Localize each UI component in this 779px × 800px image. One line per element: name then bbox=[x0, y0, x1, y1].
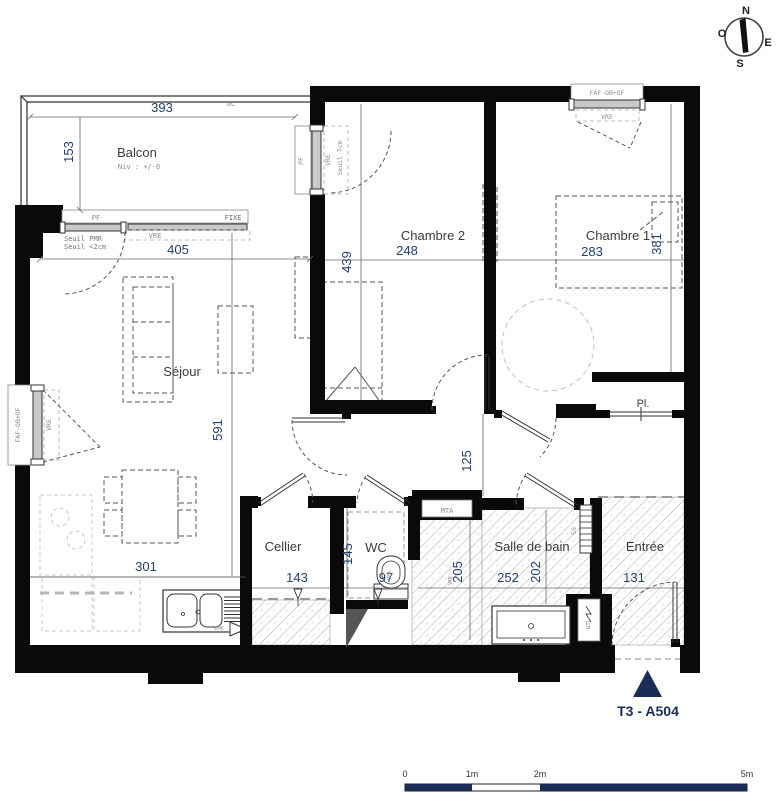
dim-balcon-width: 393 bbox=[151, 100, 173, 115]
vre-note-chambre2: VRE bbox=[324, 154, 332, 166]
labels: Balcon Niv : +/-0 393 153 GC PF FIXE VRE… bbox=[14, 89, 664, 632]
room-label-sejour: Séjour bbox=[163, 364, 201, 379]
chair bbox=[104, 510, 122, 536]
compass-south: S bbox=[736, 58, 743, 70]
room-label-placard: Pl. bbox=[637, 398, 650, 410]
dim-duct-height: 205 bbox=[450, 561, 465, 583]
appliance bbox=[94, 577, 140, 631]
sofa bbox=[123, 277, 173, 402]
scale-0: 0 bbox=[402, 769, 407, 779]
balcon-level-note: Niv : +/-0 bbox=[118, 163, 160, 171]
compass-rose: N O E S bbox=[718, 5, 772, 70]
dining-table bbox=[122, 470, 178, 543]
cellier-tile-floor bbox=[252, 600, 330, 645]
coffee-table bbox=[218, 306, 253, 373]
floor-plan-page: Balcon Niv : +/-0 393 153 GC PF FIXE VRE… bbox=[0, 0, 779, 800]
vmc-note-wc: VMC bbox=[387, 570, 393, 580]
dim-wc-height: 145 bbox=[340, 543, 355, 565]
compass-east: E bbox=[764, 37, 771, 49]
room-label-cellier: Cellier bbox=[265, 539, 303, 554]
duct-strip-floor bbox=[412, 518, 482, 645]
dim-chambre2-height: 439 bbox=[339, 251, 354, 273]
dim-chambre2-width: 248 bbox=[396, 243, 418, 258]
balcony-window bbox=[60, 210, 250, 294]
vre-note-north: VRE bbox=[601, 113, 613, 121]
kitchen-corner-unit bbox=[40, 495, 92, 575]
vmc-note-kitchen: VMC bbox=[214, 626, 224, 632]
dim-corridor: 125 bbox=[459, 450, 474, 472]
chair bbox=[178, 477, 196, 503]
dim-chambre1-height: 381 bbox=[649, 233, 664, 255]
faf-note-west: FAF-OB+OF bbox=[14, 407, 22, 442]
sink-basin bbox=[167, 594, 197, 627]
scale-seg-0-1 bbox=[405, 784, 472, 791]
mta-note: MTA bbox=[441, 507, 454, 515]
dim-chambre1-width: 283 bbox=[581, 244, 603, 259]
unit-triangle-icon bbox=[633, 670, 662, 697]
kitchen-appliances-faint bbox=[40, 495, 140, 631]
sink-basin bbox=[200, 594, 222, 627]
scale-bar: 0 1m 2m 5m bbox=[402, 769, 753, 791]
vre-note-west: VRE bbox=[45, 419, 53, 431]
scale-2m: 2m bbox=[534, 769, 547, 779]
ss-note: SS bbox=[570, 527, 578, 535]
fixe-note: FIXE bbox=[225, 214, 242, 222]
floor-plan-drawing: Balcon Niv : +/-0 393 153 GC PF FIXE VRE… bbox=[0, 0, 779, 800]
compass-west: O bbox=[718, 28, 727, 40]
scale-seg-2-5 bbox=[540, 784, 747, 791]
room-label-chambre2: Chambre 2 bbox=[401, 228, 465, 243]
gtl-note: GTL bbox=[586, 618, 592, 629]
chair bbox=[178, 510, 196, 536]
wc-duct-shadow bbox=[346, 609, 368, 648]
dim-sdb-height: 202 bbox=[528, 561, 543, 583]
vre-note: VRE bbox=[149, 232, 162, 240]
compass-north: N bbox=[742, 5, 750, 17]
room-label-sdb: Salle de bain bbox=[494, 539, 569, 554]
unit-label: T3 - A504 bbox=[617, 703, 679, 719]
room-label-balcon: Balcon bbox=[117, 145, 157, 160]
faf-note-north: FAF-OB+OF bbox=[589, 89, 624, 97]
tv-unit bbox=[295, 257, 311, 338]
dim-sdb-width: 252 bbox=[497, 570, 519, 585]
gc-note: GC bbox=[227, 100, 235, 108]
pf-note-chambre2: PF bbox=[297, 157, 305, 165]
seuil-pmr-note: Seuil PMR bbox=[64, 235, 103, 243]
scale-1m: 1m bbox=[466, 769, 479, 779]
scale-5m: 5m bbox=[741, 769, 754, 779]
chair bbox=[104, 477, 122, 503]
dim-balcon-height: 153 bbox=[61, 141, 76, 163]
bed-chambre2 bbox=[322, 282, 382, 404]
unit-title: T3 - A504 bbox=[617, 670, 679, 719]
armchair-circle bbox=[502, 299, 594, 391]
dim-sejour-width: 405 bbox=[167, 242, 189, 257]
seuil-7cm-note: Seuil 7cm bbox=[336, 140, 344, 175]
compass-needle bbox=[740, 18, 749, 53]
seuil-2cm-note: Seuil <2cm bbox=[64, 243, 106, 251]
appliance bbox=[42, 577, 92, 631]
dim-entree-width: 131 bbox=[623, 570, 645, 585]
room-label-entree: Entrée bbox=[626, 539, 664, 554]
dim-cellier-width: 143 bbox=[286, 570, 308, 585]
room-label-wc: WC bbox=[365, 540, 387, 555]
dim-sejour-height: 591 bbox=[210, 419, 225, 441]
dim-kitchen-width: 301 bbox=[135, 559, 157, 574]
pf-note: PF bbox=[92, 214, 100, 222]
room-label-chambre1: Chambre 1 bbox=[586, 228, 650, 243]
